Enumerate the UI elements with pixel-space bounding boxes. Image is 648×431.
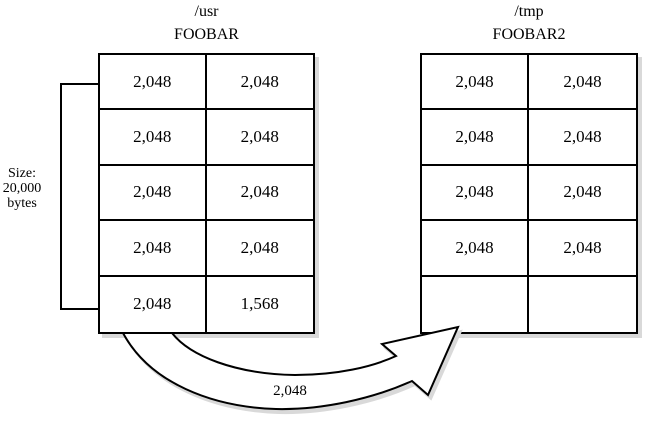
dest-block-cell: 2,048: [529, 55, 636, 110]
source-volume-header: /usr FOOBAR: [98, 3, 315, 44]
source-block-cell: 2,048: [207, 221, 314, 276]
source-block-cell: 2,048: [100, 55, 207, 110]
dest-block-cell: 2,048: [529, 166, 636, 221]
dest-block-cell: [422, 277, 529, 332]
dest-volume-table: 2,048 2,048 2,048 2,048 2,048 2,048 2,04…: [420, 53, 638, 334]
source-block-cell: 2,048: [100, 221, 207, 276]
transfer-arrow-shadow: [126, 331, 461, 413]
source-block-cell: 2,048: [100, 166, 207, 221]
dest-volume-header: /tmp FOOBAR2: [420, 3, 638, 44]
block-copy-diagram: /usr FOOBAR /tmp FOOBAR2 Size: 20,000 by…: [0, 0, 648, 431]
dest-block-cell: 2,048: [422, 110, 529, 165]
size-annotation-line3: bytes: [0, 196, 44, 211]
source-block-cell: 2,048: [207, 55, 314, 110]
size-annotation-line2: 20,000: [0, 181, 44, 196]
source-block-cell: 1,568: [207, 277, 314, 332]
source-block-cell: 2,048: [100, 277, 207, 332]
size-annotation: Size: 20,000 bytes: [0, 166, 44, 211]
dest-block-cell: 2,048: [529, 110, 636, 165]
source-block-cell: 2,048: [207, 166, 314, 221]
transfer-arrow-label: 2,048: [262, 384, 318, 399]
dest-volume-path: /tmp: [420, 3, 638, 21]
size-bracket: [60, 83, 98, 310]
dest-block-cell: 2,048: [422, 55, 529, 110]
source-volume-table: 2,048 2,048 2,048 2,048 2,048 2,048 2,04…: [98, 53, 315, 334]
source-volume-name: FOOBAR: [98, 26, 315, 44]
dest-volume-name: FOOBAR2: [420, 26, 638, 44]
dest-block-cell: [529, 277, 636, 332]
dest-block-cell: 2,048: [422, 166, 529, 221]
dest-block-cell: 2,048: [529, 221, 636, 276]
dest-block-cell: 2,048: [422, 221, 529, 276]
size-annotation-line1: Size:: [0, 166, 44, 181]
source-block-cell: 2,048: [100, 110, 207, 165]
source-block-cell: 2,048: [207, 110, 314, 165]
source-volume-path: /usr: [98, 3, 315, 21]
